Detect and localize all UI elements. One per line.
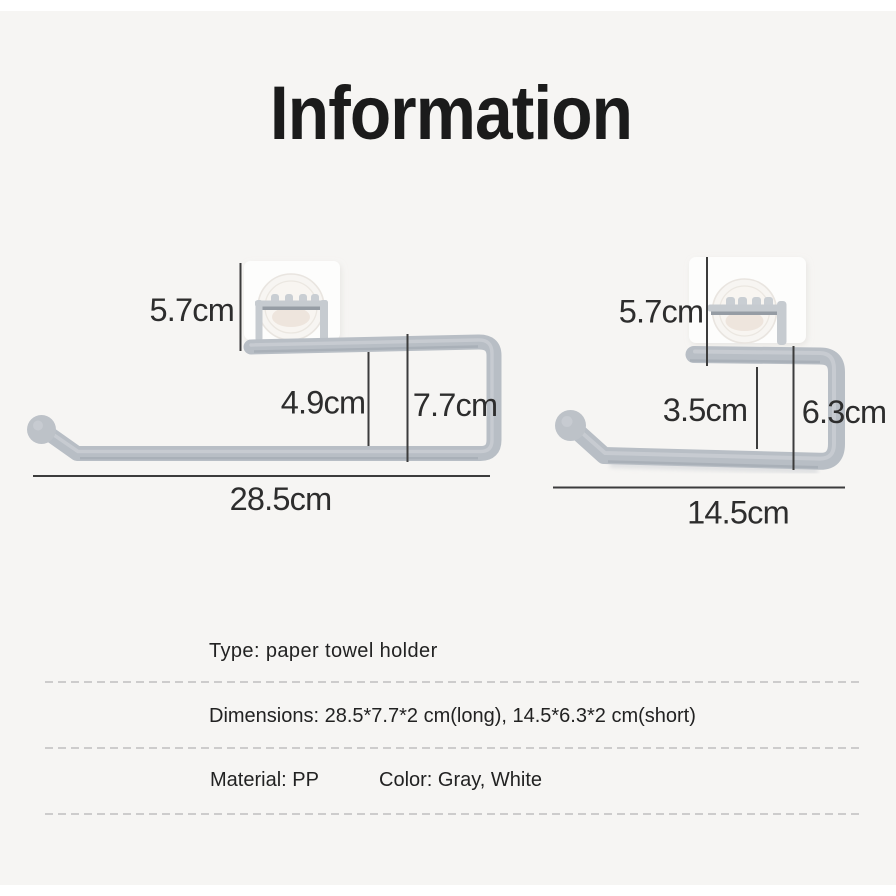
svg-text:7.7cm: 7.7cm: [413, 387, 498, 423]
svg-text:6.3cm: 6.3cm: [802, 394, 887, 430]
svg-text:14.5cm: 14.5cm: [687, 495, 789, 531]
svg-text:28.5cm: 28.5cm: [230, 481, 332, 517]
svg-text:5.7cm: 5.7cm: [619, 294, 704, 330]
svg-text:3.5cm: 3.5cm: [663, 392, 748, 428]
svg-text:4.9cm: 4.9cm: [281, 385, 366, 421]
svg-text:5.7cm: 5.7cm: [149, 292, 234, 328]
